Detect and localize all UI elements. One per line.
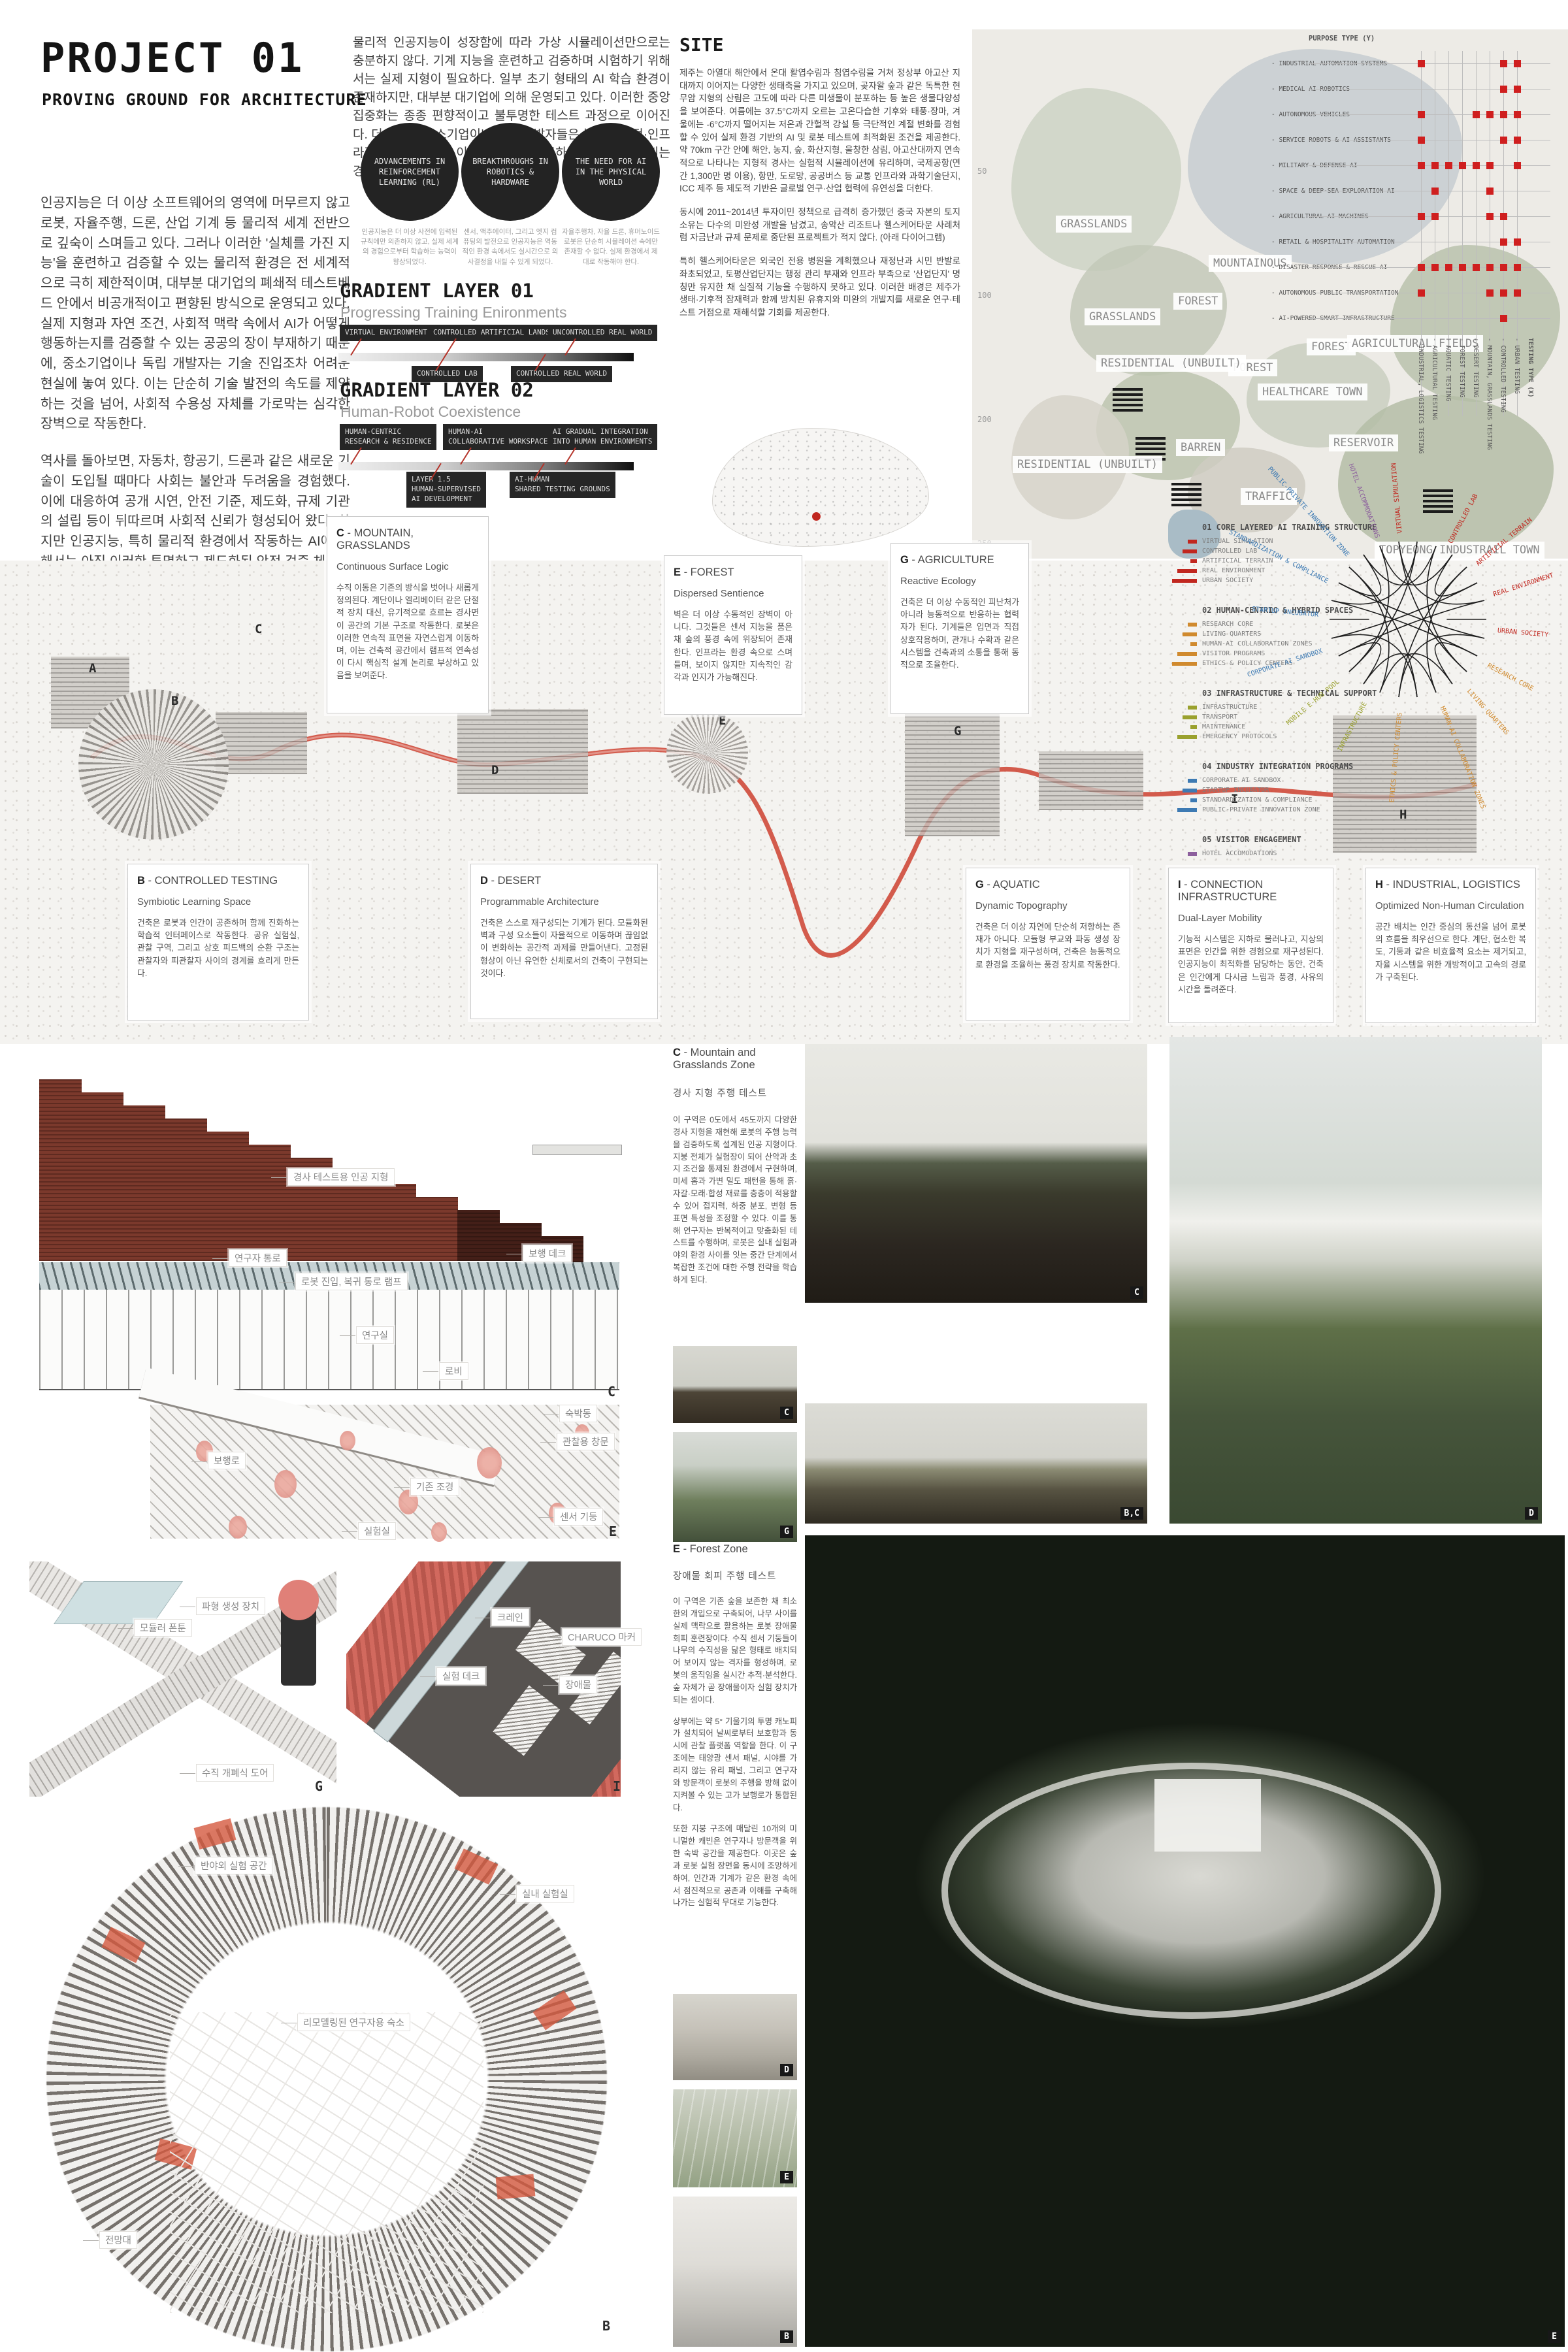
matrix-dot	[1500, 264, 1507, 271]
regional-map: GRASSLANDSMOUNTAINOUSFORESTGRASSLANDSFOR…	[972, 29, 1568, 559]
photo-mirror: G	[673, 1432, 797, 1542]
photo-big-render: E	[805, 1535, 1565, 2347]
site-paragraph: 특히 헬스케어타운은 외국인 전용 병원을 계획했으나 재정난과 시민 반발로 …	[679, 255, 960, 319]
gradient-label-bottom: LAYER 1.5 HUMAN-SUPERVISED AI DEVELOPMEN…	[406, 472, 486, 508]
matrix-row-line	[1309, 216, 1550, 217]
aquatic-letter: G	[315, 1778, 323, 1794]
concept-circle-rl: ADVANCEMENTS IN REINFORCEMENT LEARNING (…	[361, 123, 459, 221]
c-zone-letter: C	[673, 1047, 681, 1058]
matrix-col-label: - INDUSTRIAL, LOGISTICS TESTING	[1417, 338, 1424, 453]
legend-item: STANDARDIZATION & COMPLIANCE	[1202, 796, 1313, 806]
section-roof-step	[248, 1145, 291, 1261]
matrix-dot	[1418, 264, 1425, 271]
legend-group-title: 01 CORE LAYERED AI TRAINING STRUCTURE	[1202, 523, 1377, 532]
matrix-dot	[1418, 137, 1425, 144]
zone-box-concept: Continuous Surface Logic	[336, 561, 479, 572]
map-building-cluster	[1171, 480, 1201, 506]
zone-box-title: C - MOUNTAIN, GRASSLANDS	[336, 527, 479, 552]
matrix-dot	[1514, 60, 1521, 67]
circle-caption: 인공지능은 더 이상 사전에 입력된 규칙에만 의존하지 않고, 실제 세계의 …	[360, 227, 459, 267]
matrix-dot	[1486, 162, 1494, 169]
circular-callout: 반야외 실험 공간	[195, 1857, 272, 1874]
circle-caption: 센서, 액추에이터, 그리고 엣지 컴퓨팅의 발전으로 인공지능은 역동적인 환…	[461, 227, 560, 267]
forest-tree	[477, 1447, 502, 1478]
map-building-cluster	[1113, 385, 1143, 412]
site-location-dot	[812, 512, 821, 521]
c-zone-body: 이 구역은 0도에서 45도까지 다양한 경사 지형을 재현해 로봇의 주행 능…	[673, 1114, 797, 1286]
section-letter: C	[608, 1384, 615, 1399]
legend-color-bar	[1190, 798, 1197, 802]
legend-group-title: 04 INDUSTRY INTEGRATION PROGRAMS	[1202, 762, 1353, 771]
matrix-dot	[1418, 213, 1425, 220]
legend-color-bar	[1183, 715, 1197, 719]
aquatic-callout: 파형 생성 장치	[196, 1597, 265, 1615]
section-callout: 보행 데크	[523, 1245, 572, 1262]
matrix-col-label: - AQUATIC TESTING	[1445, 338, 1452, 401]
photo-horse: C	[673, 1346, 797, 1423]
zone-box-concept: Programmable Architecture	[480, 896, 648, 907]
plan-round-pavilion	[666, 712, 748, 794]
deck-callout: 실험 데크	[436, 1667, 485, 1685]
section-callout: 경사 테스트용 인공 지형	[287, 1168, 395, 1186]
matrix-dot	[1459, 264, 1466, 271]
zone-box-title: D - DESERT	[480, 875, 648, 887]
matrix-axis-x: TESTING TYPE (X)	[1527, 338, 1534, 398]
deck-letter: I	[613, 1778, 621, 1794]
deck-obstacle	[493, 1686, 560, 1756]
zone-box-B: B - CONTROLLED TESTINGSymbiotic Learning…	[127, 864, 309, 1021]
site-paragraph: 제주는 아열대 해안에서 온대 활엽수림과 침엽수림을 거쳐 정상부 아고산 지…	[679, 67, 960, 195]
matrix-dot	[1418, 162, 1425, 169]
site-title: SITE	[679, 34, 723, 56]
intro-paragraph: 인공지능은 더 이상 소프트웨어의 영역에 머무르지 않고 로봇, 자율주행, …	[41, 193, 350, 434]
zone-letter: G	[975, 879, 984, 890]
matrix-dot	[1486, 188, 1494, 195]
section-roof-step	[81, 1092, 123, 1261]
gradient-label-top: HUMAN-CENTRIC RESEARCH & RESIDENCE	[340, 424, 436, 450]
zone-box-body: 공간 배치는 인간 중심의 동선을 넘어 로봇의 흐름을 최우선으로 한다. 계…	[1375, 921, 1526, 983]
zone-box-concept: Reactive Ecology	[900, 576, 1019, 587]
gradient-label-bottom: AI-HUMAN SHARED TESTING GROUNDS	[510, 472, 615, 498]
matrix-dot	[1418, 111, 1425, 118]
gradient-label-top: HUMAN-AI COLLABORATIVE WORKSPACE	[443, 424, 553, 450]
map-label: BARREN	[1176, 439, 1225, 456]
zone-box-concept: Symbiotic Learning Space	[137, 896, 299, 907]
aquatic-canvas	[29, 1561, 336, 1797]
legend-color-bar	[1177, 569, 1197, 573]
matrix-dot	[1514, 162, 1521, 169]
matrix-dot	[1514, 238, 1521, 246]
forest-callout: 실험실	[358, 1522, 396, 1540]
circular-callout: 실내 실험실	[516, 1885, 574, 1903]
zone-box-I: I - CONNECTION INFRASTRUCTUREDual-Layer …	[1168, 868, 1333, 1023]
gradient-bar	[338, 353, 634, 361]
legend-color-bar	[1172, 662, 1197, 666]
legend-color-bar	[1188, 852, 1197, 856]
matrix-dot	[1445, 162, 1452, 169]
matrix-dot	[1418, 60, 1425, 67]
legend-item: VISITOR PROGRAMS	[1202, 649, 1265, 659]
plan-letter-D: D	[491, 763, 498, 777]
zone-box-C: C - MOUNTAIN, GRASSLANDSContinuous Surfa…	[327, 516, 489, 713]
circular-lab-patch	[496, 2174, 536, 2200]
e-zone-paragraph: 상부에는 약 5° 기울기의 투명 캐노피가 설치되어 날씨로부터 보호함과 동…	[673, 1716, 797, 1814]
legend-color-bar	[1188, 623, 1197, 627]
map-label: GRASSLANDS	[1085, 308, 1160, 325]
zone-box-body: 건축은 더 이상 자연에 단순히 저항하는 존재가 아니다. 모듈형 부교와 파…	[975, 921, 1120, 971]
circular-interior	[170, 2012, 483, 2313]
matrix-dot	[1514, 86, 1521, 93]
matrix-dot	[1514, 264, 1521, 271]
forest-tree	[229, 1516, 247, 1539]
matrix-dot	[1445, 264, 1452, 271]
zone-box-title: G - AGRICULTURE	[900, 554, 1019, 566]
forest-tree	[431, 1522, 447, 1542]
plan-building-cluster	[1039, 751, 1143, 810]
matrix-dot	[1514, 137, 1521, 144]
matrix-dot	[1500, 111, 1507, 118]
map-label: RESIDENTIAL (UNBUILT)	[1096, 355, 1246, 372]
site-paragraph: 동시에 2011~2014년 투자이민 정책으로 급격히 증가했던 중국 자본의…	[679, 206, 960, 244]
legend-item: STARTUP INCUBATOR	[1202, 786, 1269, 796]
matrix-dot	[1473, 264, 1480, 271]
matrix-dot	[1500, 238, 1507, 246]
zone-box-body: 기능적 시스템은 지하로 물러나고, 지상의 표면은 인간을 위한 경험으로 재…	[1178, 933, 1324, 996]
map-region-patch	[1338, 395, 1554, 559]
photo-badge: B	[780, 2330, 793, 2343]
matrix-dot	[1431, 188, 1439, 195]
aquatic-callout: 수직 개폐식 도어	[196, 1764, 274, 1782]
legend-item: HOTEL ACCOMODATIONS	[1202, 849, 1277, 859]
legend-color-bar	[1183, 549, 1197, 553]
map-label: RESIDENTIAL (UNBUILT)	[1013, 456, 1162, 473]
photo-badge: D	[1525, 1507, 1538, 1520]
zone-letter: C	[336, 527, 344, 539]
circular-callout: 리모델링된 연구자용 숙소	[297, 2014, 410, 2031]
zone-box-title: E - FOREST	[674, 566, 792, 579]
zone-letter: I	[1178, 879, 1181, 890]
matrix-dot	[1500, 213, 1507, 220]
legend-item: CORPORATE AI SANDBOX	[1202, 776, 1281, 786]
zone-box-concept: Optimized Non-Human Circulation	[1375, 900, 1526, 911]
aquatic-callout: 모듈러 폰툰	[134, 1619, 192, 1637]
circular-callout: 전망대	[99, 2231, 137, 2249]
plan-letter-H: H	[1399, 808, 1407, 822]
matrix-dot	[1500, 60, 1507, 67]
e-zone-paragraph: 또한 지붕 구조에 매달린 10개의 미니멀한 캐빈은 연구자나 방문객을 위한…	[673, 1823, 797, 1909]
zone-letter: E	[674, 566, 681, 578]
forest-callout: 기존 조경	[410, 1478, 459, 1495]
gradient02-title: GRADIENT LAYER 02	[340, 379, 534, 401]
zone-box-title: G - AQUATIC	[975, 879, 1120, 891]
forest-tree	[340, 1431, 355, 1450]
legend-color-bar	[1172, 579, 1197, 583]
map-region-patch	[1011, 88, 1181, 271]
gradient01-subtitle: Progressing Training Enironments	[340, 304, 566, 321]
legend-color-bar	[1190, 725, 1197, 729]
map-label: TOPYEONG INDUSTRAIL TOWN	[1375, 542, 1544, 559]
legend-item: ARTIFICIAL TERRAIN	[1202, 557, 1273, 566]
section-roof-step	[165, 1119, 207, 1261]
legend-color-bar	[1177, 735, 1197, 739]
plan-building-cluster	[457, 709, 588, 794]
matrix-dot	[1486, 289, 1494, 297]
forest-callout: 관찰용 창문	[557, 1433, 615, 1450]
legend-color-bar	[1188, 779, 1197, 783]
legend-color-bar	[1183, 632, 1197, 636]
circle-caption: 자율주행차, 자율 드론, 휴머노이드 로봇은 단순히 시뮬레이션 속에만 존재…	[561, 227, 661, 267]
photo-robot: D	[673, 1994, 797, 2080]
section-callout: 연구자 통로	[229, 1249, 287, 1267]
map-label: GRASSLANDS	[1056, 216, 1132, 233]
c-zone-title: C - Mountain and Grasslands Zone	[673, 1047, 797, 1071]
map-contour-label: 200	[977, 415, 992, 424]
matrix-col-label: - DESERT TESTING	[1472, 338, 1479, 398]
plan-building-cluster	[216, 712, 307, 774]
matrix-dot	[1500, 86, 1507, 93]
legend-color-bar	[1188, 706, 1197, 710]
site-text: 제주는 아열대 해안에서 온대 활엽수림과 침엽수림을 거쳐 정상부 아고산 지…	[679, 67, 960, 330]
e-zone-title: E - Forest Zone	[673, 1543, 797, 1556]
zone-box-title: B - CONTROLLED TESTING	[137, 875, 299, 887]
legend-item: INFRASTRUCTURE	[1202, 703, 1257, 713]
forest-tree	[274, 1470, 297, 1498]
legend-color-bar	[1190, 559, 1197, 563]
matrix-row-line	[1309, 191, 1550, 191]
photo-badge: E	[780, 2171, 793, 2183]
matrix-dot	[1473, 162, 1480, 169]
legend-color-bar	[1188, 540, 1197, 544]
matrix-dot	[1459, 162, 1466, 169]
gradient-label-top: AI GRADUAL INTEGRATION INTO HUMAN ENVIRO…	[547, 424, 657, 450]
plan-letter-E: E	[719, 713, 726, 728]
legend-item: TRANSPORT	[1202, 713, 1237, 723]
plan-letter-G: G	[954, 724, 961, 738]
legend-item: LIVING QUARTERS	[1202, 630, 1261, 640]
page-subtitle: PROVING GROUND FOR ARCHITECTURE	[42, 90, 367, 109]
forest-letter: E	[609, 1524, 617, 1539]
plan-ring-cluster	[78, 689, 229, 840]
map-label: FOREST	[1173, 293, 1222, 310]
photo-hillside: D	[1169, 1037, 1542, 1524]
section-roof-step	[457, 1210, 500, 1261]
zone-box-body: 건축은 스스로 재구성되는 기계가 된다. 모듈화된 벽과 구성 요소들이 자율…	[480, 917, 648, 979]
photo-pond: B,C	[805, 1403, 1147, 1524]
zone-box-body: 수직 이동은 기존의 방식을 벗어나 새롭게 정의된다. 계단이나 엘리베이터 …	[336, 581, 479, 682]
aquatic-wave-device-cap	[278, 1580, 319, 1620]
legend-item: MAINTENANCE	[1202, 723, 1245, 732]
matrix-dot	[1500, 289, 1507, 297]
section-callout: 로비	[439, 1362, 468, 1380]
zone-box-concept: Dual-Layer Mobility	[1178, 913, 1324, 924]
legend-group-title: 05 VISITOR ENGAGEMENT	[1202, 835, 1301, 844]
e-zone-title-rest: - Forest Zone	[680, 1543, 748, 1555]
matrix-col-label: - URBAN TESTING	[1513, 338, 1520, 394]
e-zone-article: E - Forest Zone 장애물 회피 주행 테스트 이 구역은 기존 숲…	[673, 1543, 797, 1918]
matrix-dot	[1431, 264, 1439, 271]
section-callout: 연구실	[356, 1326, 394, 1344]
zone-box-title: H - INDUSTRIAL, LOGISTICS	[1375, 879, 1526, 891]
matrix-axis-y: PURPOSE TYPE (Y)	[1309, 35, 1375, 42]
section-walkway-deck	[532, 1145, 622, 1155]
zone-letter: B	[137, 875, 145, 887]
zone-box-title: I - CONNECTION INFRASTRUCTURE	[1178, 879, 1324, 904]
c-zone-subtitle: 경사 지형 주행 테스트	[673, 1086, 797, 1100]
matrix-row-line	[1309, 318, 1550, 319]
section-callout: 로봇 진입, 복귀 통로 램프	[295, 1273, 408, 1290]
matrix-dot	[1500, 137, 1507, 144]
legend-item: HUMAN-AI COLLABORATION ZONES	[1202, 640, 1313, 649]
zone-box-G: G - AGRICULTUREReactive Ecology건축은 더 이상 …	[890, 543, 1029, 714]
matrix-dot	[1514, 111, 1521, 118]
forest-callout: 숙박동	[559, 1405, 597, 1422]
zone-box-body: 건축은 더 이상 수동적인 피난처가 아니라 능동적으로 반응하는 협력자가 된…	[900, 596, 1019, 671]
e-zone-text: 이 구역은 기존 숲을 보존한 채 최소한의 개입으로 구축되어, 나무 사이를…	[673, 1595, 797, 1909]
gradient01-title: GRADIENT LAYER 01	[340, 280, 534, 302]
presentation-board: PROJECT 01 PROVING GROUND FOR ARCHITECTU…	[0, 0, 1568, 2352]
legend-item: RESEARCH CORE	[1202, 620, 1253, 630]
section-roof-step	[416, 1197, 458, 1261]
deck-callout: CHARUCO 마커	[562, 1628, 642, 1646]
forest-callout: 센서 기둥	[554, 1508, 603, 1526]
legend-item: EMERGENCY PROTOCOLS	[1202, 732, 1277, 742]
matrix-col-label: - CONTROLLED TESTING	[1499, 338, 1507, 412]
legend-color-bar	[1190, 642, 1197, 646]
map-label: HEALTHCARE TOWN	[1258, 384, 1367, 400]
gradient-bar	[338, 462, 634, 470]
photo-badge: B,C	[1120, 1507, 1143, 1520]
legend-item: REAL ENVIRONMENT	[1202, 566, 1265, 576]
concept-circle-physical: THE NEED FOR AI IN THE PHYSICAL WORLD	[562, 123, 660, 221]
legend-color-bar	[1183, 789, 1197, 792]
gradient-label-top: VIRTUAL ENVIRONMENT	[340, 325, 433, 341]
matrix-dot	[1431, 213, 1439, 220]
map-contour-label: 50	[977, 167, 987, 176]
forest-roof-grid	[150, 1405, 619, 1539]
map-label: RESERVOIR	[1329, 434, 1398, 451]
photo-badge: G	[780, 1526, 793, 1538]
page-title: PROJECT 01	[41, 34, 304, 82]
legend-group-title: 03 INFRASTRUCTURE & TECHNICAL SUPPORT	[1202, 689, 1377, 698]
big-render-cabin	[1154, 1779, 1261, 1852]
zone-box-E: E - FORESTDispersed Sentience벽은 더 이상 수동적…	[664, 555, 802, 715]
section-lab-level	[39, 1290, 619, 1390]
map-contour-label: 100	[977, 291, 992, 300]
deck-callout: 장애물	[559, 1676, 597, 1693]
photo-badge: C	[1130, 1286, 1143, 1299]
photo-badge: E	[1548, 2330, 1561, 2343]
gradient-label-top: UNCONTROLLED REAL WORLD	[547, 325, 657, 341]
matrix-dot	[1514, 289, 1521, 297]
legend-item: CONTROLLED LAB	[1202, 547, 1257, 557]
photo-badge: C	[780, 1407, 793, 1419]
zone-box-body: 건축은 로봇과 인간이 공존하며 함께 진화하는 학습적 인터페이스로 작동한다…	[137, 917, 299, 979]
gradient02-subtitle: Human-Robot Coexistence	[340, 403, 521, 421]
zone-box-concept: Dispersed Sentience	[674, 588, 792, 599]
photo-interior: B	[673, 2197, 797, 2347]
map-building-cluster	[1423, 487, 1453, 513]
section-roof-step	[39, 1079, 82, 1261]
zone-box-concept: Dynamic Topography	[975, 900, 1120, 911]
photo-fence: C	[805, 1044, 1147, 1303]
legend-color-bar	[1177, 652, 1197, 656]
c-zone-title-rest: - Mountain and Grasslands Zone	[673, 1047, 756, 1071]
zone-letter: G	[900, 554, 909, 566]
matrix-col-label: - AGRICULTURAL TESTING	[1431, 338, 1438, 420]
zone-box-D: D - DESERTProgrammable Architecture건축은 스…	[470, 864, 658, 1019]
plan-letter-C: C	[255, 622, 262, 636]
legend-item: PUBLIC-PRIVATE INNOVATION ZONE	[1202, 806, 1320, 815]
forest-callout: 보행로	[208, 1452, 246, 1469]
matrix-dot	[1500, 315, 1507, 322]
zone-box-H: H - INDUSTRIAL, LOGISTICSOptimized Non-H…	[1365, 868, 1536, 1023]
matrix-dot	[1486, 213, 1494, 220]
matrix-col-label: - FOREST TESTING	[1458, 338, 1465, 398]
matrix-dot	[1486, 264, 1494, 271]
legend-item: URBAN SOCIETY	[1202, 576, 1253, 586]
legend-color-bar	[1177, 808, 1197, 812]
section-roof-step	[123, 1105, 165, 1261]
e-zone-letter: E	[673, 1543, 680, 1555]
c-zone-article: C - Mountain and Grasslands Zone 경사 지형 주…	[673, 1047, 797, 1286]
circular-letter: B	[602, 2318, 610, 2334]
matrix-dot	[1486, 111, 1494, 118]
plan-letter-B: B	[171, 694, 178, 708]
jeju-island-map	[712, 428, 929, 547]
e-zone-subtitle: 장애물 회피 주행 테스트	[673, 1569, 797, 1582]
matrix-col-label: - MOUNTAIN, GRASSLANDS TESTING	[1486, 338, 1493, 450]
section-roof-step	[374, 1184, 416, 1261]
deck-callout: 크레인	[491, 1609, 529, 1626]
photo-badge: D	[780, 2064, 793, 2076]
zone-letter: H	[1375, 879, 1383, 890]
matrix-dot	[1418, 289, 1425, 297]
plan-letter-A: A	[89, 661, 96, 676]
zone-box-G: G - AQUATICDynamic Topography건축은 더 이상 자연…	[966, 868, 1130, 1021]
section-roof-step	[206, 1132, 249, 1261]
e-zone-paragraph: 이 구역은 기존 숲을 보존한 채 최소한의 개입으로 구축되어, 나무 사이를…	[673, 1595, 797, 1707]
zone-letter: D	[480, 875, 488, 887]
zone-box-body: 벽은 더 이상 수동적인 장벽이 아니다. 그것들은 센서 지능을 품은 채 숲…	[674, 608, 792, 683]
matrix-dot	[1431, 162, 1439, 169]
concept-circle-robotics: BREAKTHROUGHS IN ROBOTICS & HARDWARE	[461, 123, 559, 221]
matrix-dot	[1473, 111, 1480, 118]
photo-drone: E	[673, 2089, 797, 2187]
